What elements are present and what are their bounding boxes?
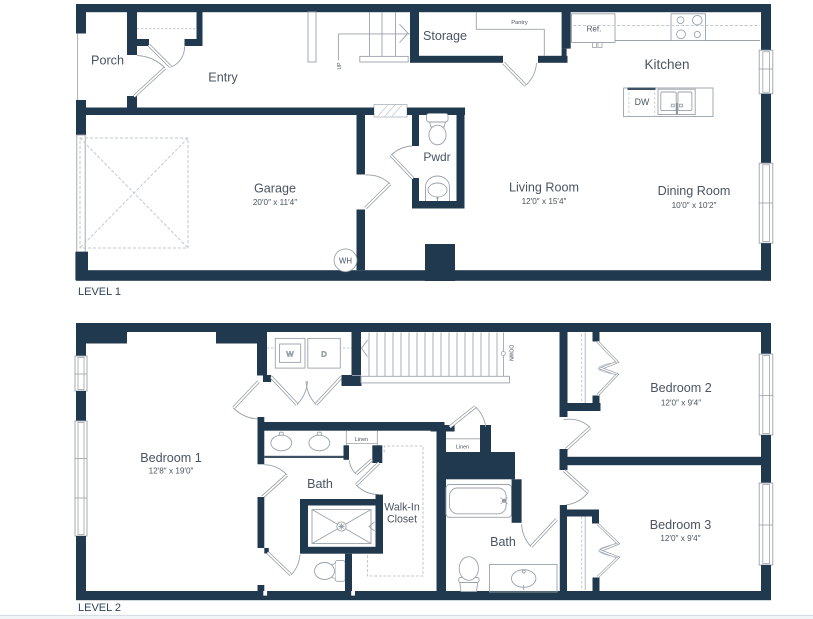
svg-text:Bath: Bath bbox=[490, 535, 516, 549]
svg-text:20′0″ x 11′4″: 20′0″ x 11′4″ bbox=[253, 198, 297, 207]
svg-text:UP: UP bbox=[337, 62, 343, 70]
svg-text:10′0″ x 10′2″: 10′0″ x 10′2″ bbox=[672, 201, 717, 210]
svg-text:Living Room: Living Room bbox=[509, 181, 579, 195]
svg-text:Kitchen: Kitchen bbox=[644, 57, 689, 72]
svg-text:Bedroom 3: Bedroom 3 bbox=[650, 518, 712, 532]
svg-text:Storage: Storage bbox=[423, 29, 467, 43]
svg-text:DW: DW bbox=[635, 97, 650, 107]
svg-text:12′0″ x 9′4″: 12′0″ x 9′4″ bbox=[661, 399, 701, 408]
svg-text:Pantry: Pantry bbox=[511, 20, 528, 26]
svg-text:Entry: Entry bbox=[208, 71, 238, 85]
svg-text:Bedroom 1: Bedroom 1 bbox=[140, 451, 202, 465]
svg-text:12′0″ x 15′4″: 12′0″ x 15′4″ bbox=[522, 197, 567, 206]
svg-text:DOWN: DOWN bbox=[508, 345, 514, 361]
svg-text:Linen: Linen bbox=[355, 437, 368, 443]
svg-text:D: D bbox=[321, 350, 327, 359]
svg-text:W: W bbox=[286, 350, 294, 359]
svg-text:Walk-In: Walk-In bbox=[384, 502, 420, 514]
svg-text:LEVEL 2: LEVEL 2 bbox=[78, 602, 121, 614]
svg-text:Bedroom 2: Bedroom 2 bbox=[650, 381, 712, 395]
svg-text:WH: WH bbox=[339, 256, 352, 265]
svg-text:LEVEL 1: LEVEL 1 bbox=[78, 286, 121, 298]
svg-text:12′8″ x 19′0″: 12′8″ x 19′0″ bbox=[149, 467, 194, 476]
svg-text:Pwdr: Pwdr bbox=[423, 150, 450, 164]
svg-text:Porch: Porch bbox=[91, 54, 124, 68]
svg-text:12′0″ x 9′4″: 12′0″ x 9′4″ bbox=[660, 534, 700, 543]
svg-text:Garage: Garage bbox=[254, 182, 296, 196]
svg-text:Bath: Bath bbox=[307, 477, 333, 491]
svg-text:Linen: Linen bbox=[456, 445, 469, 451]
svg-text:Dining Room: Dining Room bbox=[658, 184, 731, 198]
svg-text:Closet: Closet bbox=[387, 514, 417, 526]
